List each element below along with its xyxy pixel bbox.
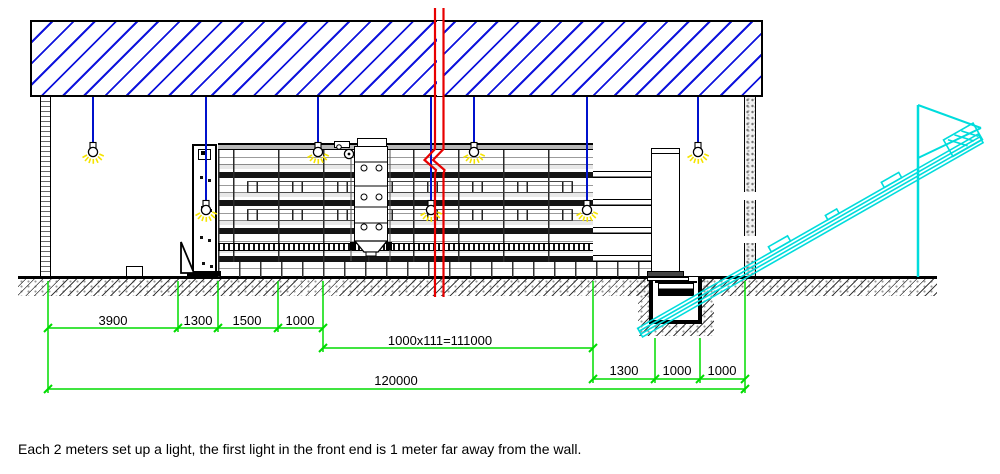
dim-111000: 1000x111=111000 bbox=[388, 334, 492, 347]
elevator-base bbox=[187, 271, 221, 276]
elevator-bolts bbox=[200, 176, 203, 179]
dim-3900: 3900 bbox=[99, 314, 128, 327]
dim-1000: 1000 bbox=[286, 314, 315, 327]
feed-machine-side-box bbox=[334, 141, 350, 148]
dim-1300-right: 1300 bbox=[610, 364, 639, 377]
conveyor-cleat bbox=[825, 209, 839, 220]
roof-slab bbox=[30, 20, 763, 97]
light-bulb-icon bbox=[688, 143, 709, 164]
feeder-row bbox=[247, 209, 573, 221]
elevator-motor bbox=[198, 149, 211, 160]
conveyor-head bbox=[944, 123, 983, 156]
end-cabinet-base bbox=[647, 271, 684, 277]
conveyor-cleat bbox=[881, 172, 901, 187]
manure-belt-mesh bbox=[218, 243, 593, 251]
right-wall-opening bbox=[743, 236, 757, 243]
dim-1000-wall: 1000 bbox=[708, 364, 737, 377]
elevator-column bbox=[192, 144, 217, 274]
feeder-row bbox=[247, 181, 573, 193]
feed-machine-top-box bbox=[357, 138, 387, 147]
caption-note: Each 2 meters set up a light, the first … bbox=[18, 441, 581, 457]
ground-hatch bbox=[18, 279, 937, 296]
elevation-drawing: 3900 1300 1500 1000 1000x111=111000 1300… bbox=[0, 0, 1000, 474]
floor-box bbox=[126, 266, 143, 277]
dim-total-120000: 120000 bbox=[374, 374, 417, 387]
left-brick-wall bbox=[40, 97, 51, 277]
dim-1000-pit: 1000 bbox=[663, 364, 692, 377]
end-cabinet bbox=[651, 148, 680, 277]
egg-collection-frame bbox=[593, 150, 652, 262]
light-bulb-icon bbox=[83, 143, 104, 164]
right-wall bbox=[744, 97, 756, 277]
cabinet-top-line bbox=[652, 153, 679, 154]
dim-1300: 1300 bbox=[184, 314, 213, 327]
right-wall-opening bbox=[743, 192, 757, 200]
feed-machine-tower bbox=[354, 146, 388, 242]
conveyor-cleat bbox=[768, 236, 790, 252]
egg-trough bbox=[658, 283, 694, 296]
cage-legs bbox=[218, 262, 652, 277]
dim-1500: 1500 bbox=[233, 314, 262, 327]
